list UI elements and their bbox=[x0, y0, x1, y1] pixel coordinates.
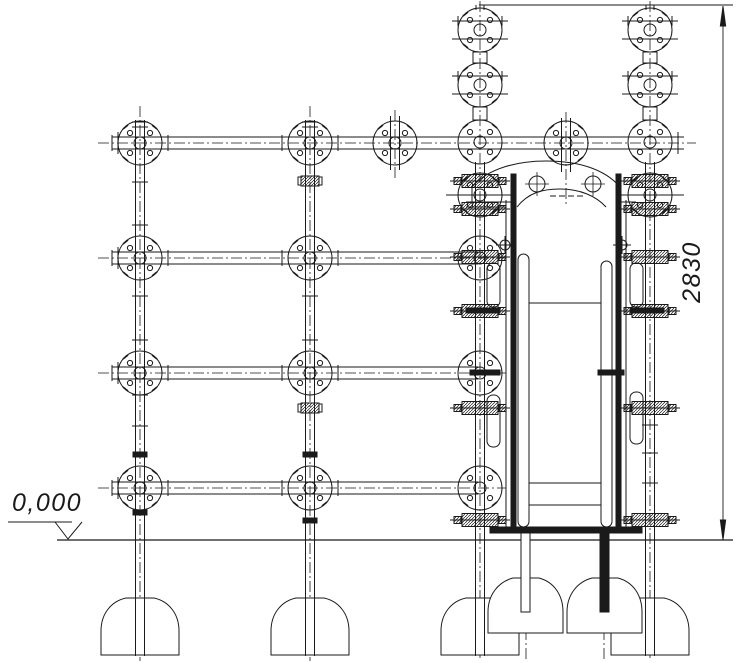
drawing-sheet: 0,000 2830 bbox=[0, 0, 736, 663]
datum-marker bbox=[8, 522, 82, 539]
elevation-label: 0,000 bbox=[12, 489, 82, 517]
foundation-bell bbox=[101, 598, 179, 655]
dimension-arrow-top bbox=[720, 6, 725, 26]
dimension-arrow-bottom bbox=[720, 520, 725, 540]
bolt-cluster bbox=[620, 305, 680, 318]
dimension-label: 2830 bbox=[678, 241, 706, 304]
vessel-guide-left bbox=[518, 254, 529, 527]
bolt-cluster bbox=[450, 203, 510, 216]
tube-couplings bbox=[133, 176, 322, 523]
bolt-cluster bbox=[620, 175, 680, 188]
elevation-drawing: 0,000 2830 bbox=[0, 0, 736, 663]
bolt-cluster bbox=[450, 514, 510, 527]
vessel-guide-right bbox=[601, 261, 612, 527]
flange-discs bbox=[112, 8, 684, 510]
coupling bbox=[298, 176, 322, 186]
coupling bbox=[298, 403, 322, 413]
bolt-cluster bbox=[620, 251, 680, 264]
apparatus-body bbox=[466, 161, 664, 533]
bolt-cluster bbox=[620, 402, 680, 415]
foundation-bell bbox=[271, 598, 349, 655]
bolt-cluster bbox=[450, 402, 510, 415]
bolt-cluster bbox=[620, 514, 680, 527]
bolt-cluster bbox=[620, 203, 680, 216]
bolt-cluster bbox=[450, 175, 510, 188]
bolt-cluster bbox=[450, 305, 510, 318]
base-plate bbox=[490, 527, 642, 533]
